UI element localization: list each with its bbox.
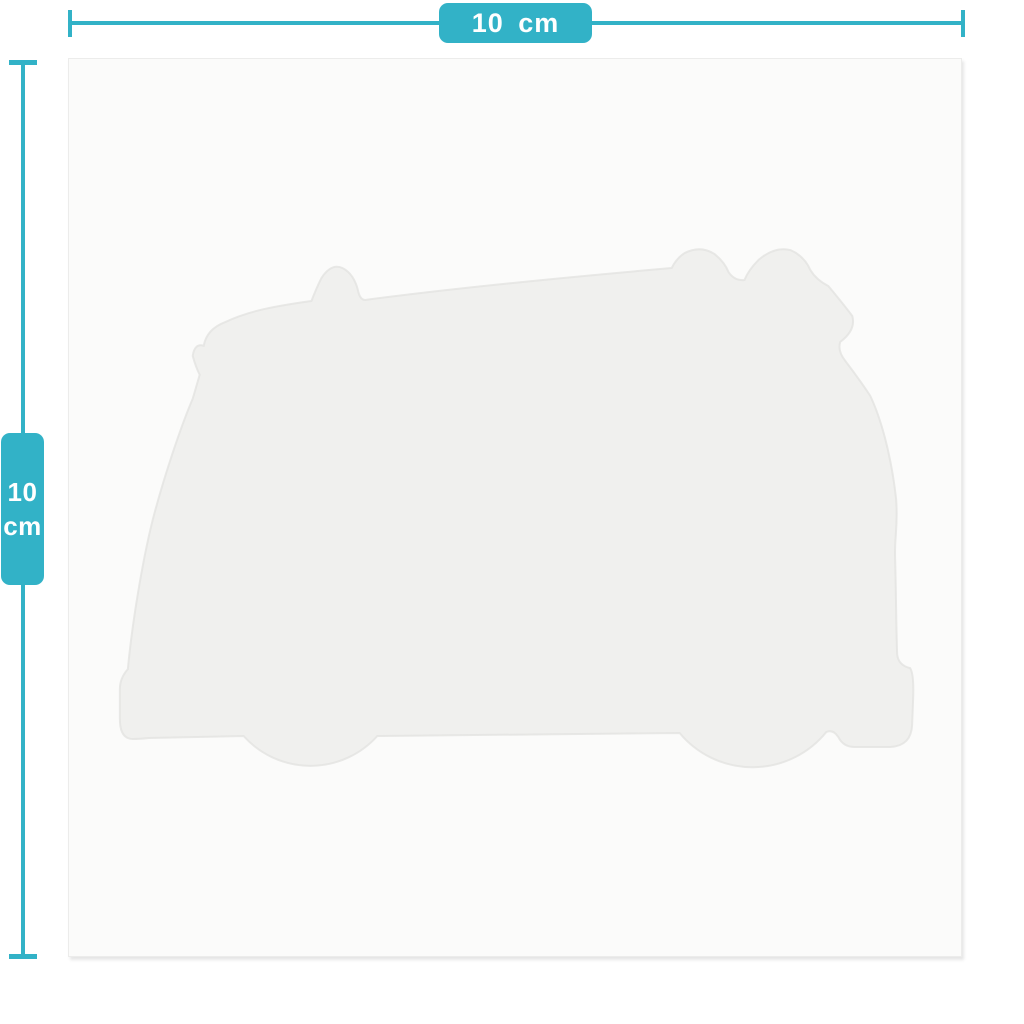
- height-value: 10: [8, 476, 38, 508]
- width-dimension-left-cap: [68, 10, 72, 37]
- width-badge: 10 cm: [439, 3, 592, 43]
- width-dimension-right-cap: [961, 10, 965, 37]
- width-label: 10 cm: [472, 8, 560, 39]
- height-badge: 10 cm: [1, 433, 44, 585]
- product-canvas: [68, 58, 962, 957]
- campervan-outline: [120, 249, 913, 767]
- height-dimension-bottom-cap: [9, 954, 37, 959]
- campervan-silhouette-icon: [69, 59, 961, 956]
- height-unit: cm: [3, 510, 42, 542]
- height-dimension-top-cap: [9, 60, 37, 65]
